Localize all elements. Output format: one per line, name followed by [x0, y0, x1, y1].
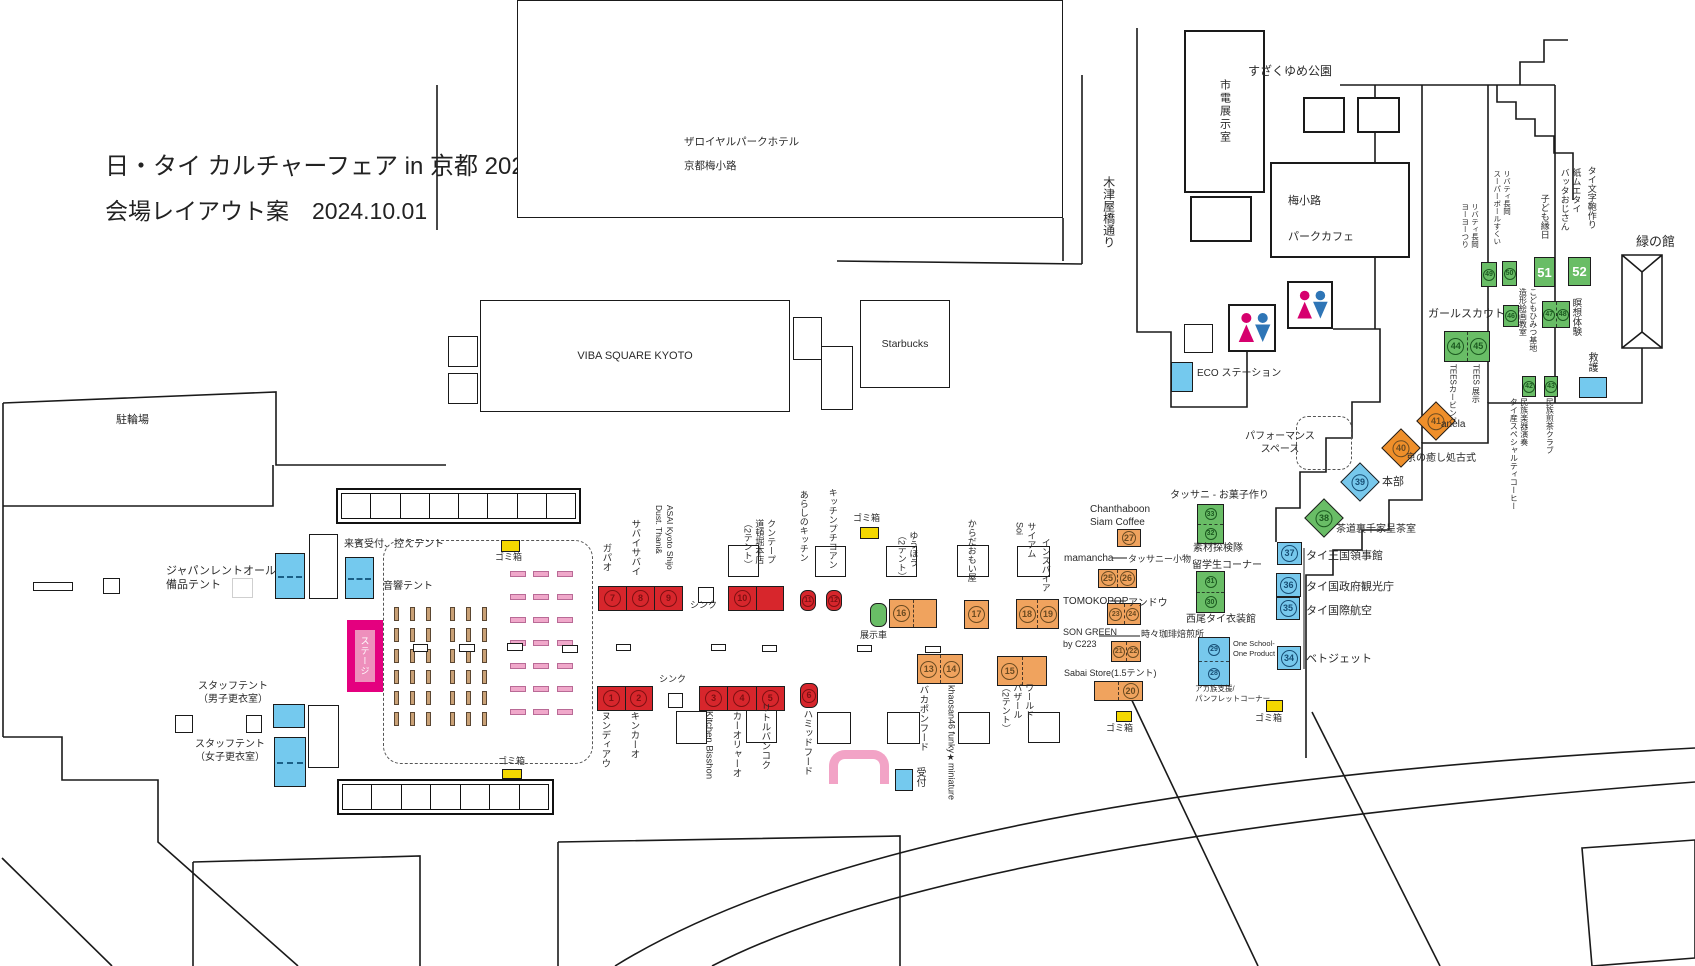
bench-tan [466, 628, 471, 642]
bench-tan [482, 691, 487, 705]
bench-pink [510, 709, 526, 715]
bench-pink [533, 640, 549, 646]
bench-tan [482, 712, 487, 726]
label-53: タイ王国領事館 [1306, 549, 1383, 563]
label-67: TEESカービング [1447, 364, 1457, 425]
label-40: mamancha [1064, 552, 1113, 565]
tent [308, 705, 339, 768]
tent [817, 712, 851, 744]
bench-pink [557, 617, 573, 623]
label-25: ゆうほう （2テント） [895, 531, 918, 581]
label-6: ジャパンレントオール 備品テント [166, 564, 276, 593]
bench-tan [482, 607, 487, 621]
bench-tan [394, 649, 399, 663]
pergola-2 [337, 779, 554, 815]
label-27: Soi サイアム [1013, 522, 1036, 558]
label-8: 音響テント [383, 580, 433, 593]
road-diag-1 [1128, 692, 1258, 966]
label-69: リバティ長岡 ヨーヨーつり [1460, 203, 1480, 248]
booth-34: 34 [1277, 646, 1301, 670]
booth-6: 6 [800, 683, 818, 708]
label-46: Sabai Store(1.5テント) [1064, 668, 1157, 680]
viba-annex-2 [448, 373, 478, 404]
bench-tan [394, 670, 399, 684]
booth-17: 17 [964, 600, 989, 629]
royal-park-hotel: ザロイヤルパークホテル京都梅小路 [517, 0, 1063, 218]
bench-tan [466, 670, 471, 684]
booth-10: 10 [728, 586, 784, 611]
page-title-line1: 日・タイ カルチャーフェア in 京都 2024 [105, 146, 538, 181]
bench-pink [533, 663, 549, 669]
booth-50: 50 [1502, 261, 1517, 286]
first-aid-box [1579, 377, 1607, 398]
park-square-2 [1357, 97, 1400, 133]
bench-pink [533, 686, 549, 692]
bench-pink [533, 709, 549, 715]
booth-11: 11 [800, 590, 816, 611]
green-hall-building [1622, 255, 1662, 348]
label-23: あらしのキッチン [797, 490, 809, 562]
tent [309, 534, 338, 599]
label-47: One School- One Product [1233, 639, 1275, 659]
booth-13-14: 1314 [917, 654, 963, 684]
venue-map: 日・タイ カルチャーフェア in 京都 2024 会場レイアウト案 2024.1… [0, 0, 1695, 966]
bench-pink [557, 594, 573, 600]
label-30: キンカーオ [627, 711, 639, 759]
park-square-1 [1303, 97, 1345, 133]
booth-31-30: 3130 [1196, 571, 1225, 613]
bench-pink [557, 686, 573, 692]
bench-tan [426, 691, 431, 705]
bench-pink [510, 617, 526, 623]
label-54: タイ国政府観光庁 [1306, 580, 1394, 594]
stage-label: ステージ [359, 636, 372, 676]
label-36: khaosan46 funky★miniature [945, 685, 957, 800]
table-bar [857, 645, 872, 652]
toilet-1 [1228, 304, 1276, 352]
bench-tan [482, 649, 487, 663]
tent [103, 578, 120, 594]
booth-33-32: 3332 [1197, 504, 1224, 544]
label-22: クンテープ 道頓堀本店 （2テント） [741, 519, 776, 569]
bench-tan [450, 712, 455, 726]
booth-7-8-9: 789 [598, 586, 683, 611]
label-56: ベトジェット [1306, 652, 1372, 666]
reception-box [895, 769, 913, 791]
staff-tent-male [273, 704, 305, 728]
bench-tan [450, 628, 455, 642]
label-7: 来賓受付、控えテント [344, 538, 444, 551]
booth-49: 49 [1481, 262, 1497, 287]
tent [958, 712, 990, 744]
label-15: ゴミ箱 [1255, 713, 1282, 725]
mid-annex-1 [793, 317, 822, 360]
bench-tan [426, 712, 431, 726]
bench-tan [426, 607, 431, 621]
label-16: シンク [690, 600, 717, 612]
bench-tan [410, 628, 415, 642]
booth-47-48: 4748 [1542, 301, 1570, 328]
umekoji-park-cafe: 梅小路パークカフェ [1270, 162, 1410, 258]
bench-tan [426, 670, 431, 684]
table-bar [459, 644, 475, 652]
bench-pink [510, 663, 526, 669]
label-62: 瞑想体験 [1569, 298, 1581, 336]
booth-15: 15 [997, 656, 1047, 686]
bench-pink [510, 594, 526, 600]
table-bar [413, 644, 428, 652]
bench-pink [533, 617, 549, 623]
booth-51: 51 [1534, 257, 1555, 287]
label-39: Chanthaboon Siam Coffee [1090, 503, 1150, 529]
bench-pink [557, 709, 573, 715]
staff-tent-female [274, 737, 306, 787]
label-38: 受付 [913, 767, 926, 787]
label-2: 木津屋橋通り [1100, 176, 1116, 248]
label-26: からだおもい屋 [965, 519, 977, 582]
label-59: 京の癒し処古式 [1406, 452, 1476, 465]
label-41: タッサニー小物 [1128, 554, 1191, 566]
label-72: 紙ムエタイ バッタおじさん [1558, 168, 1581, 231]
label-42: TOMOKOPOP [1063, 595, 1128, 608]
booth-25-26: 2526 [1098, 569, 1137, 588]
exhibit-car [870, 603, 887, 627]
toilet-icon [1230, 306, 1278, 354]
plaza-north-edge [837, 218, 1082, 264]
label-61: ガールスカウト [1428, 307, 1505, 321]
bench-pink [557, 571, 573, 577]
label-58: 茶道裏千家呈茶室 [1336, 523, 1416, 536]
booth-16: 16 [889, 599, 937, 628]
bench-tan [450, 649, 455, 663]
rental-tent-1 [275, 553, 305, 599]
label-24: キッチンプチコアン [826, 488, 838, 569]
label-70: リバティ長岡 スーパーボールすくい [1492, 170, 1512, 245]
label-49: タッサニ - お菓子作り [1170, 489, 1269, 502]
tram-exhibit-annex [1190, 196, 1252, 242]
mid-annex-2 [821, 346, 853, 410]
booth-27: 27 [1117, 529, 1141, 547]
label-19: ガパオ [599, 543, 611, 572]
label-52: 西尾タイ衣装館 [1186, 613, 1256, 626]
label-64: 造形絵画教室 こどもひみつ基地 [1517, 288, 1538, 352]
table-bar [616, 644, 631, 651]
bench-tan [394, 712, 399, 726]
table-bar [762, 645, 777, 652]
label-1: 緑の館 [1636, 234, 1675, 251]
entrance-arch [829, 750, 889, 784]
bench-tan [466, 712, 471, 726]
label-43: アンドウ [1128, 597, 1168, 610]
bench-pink [510, 686, 526, 692]
label-34: ハミッドフード [800, 709, 812, 776]
road-curve-2 [712, 782, 1695, 966]
label-33: リトルバンコク [758, 703, 770, 770]
bench-tan [466, 691, 471, 705]
booth-42: 42 [1522, 376, 1536, 397]
trash-bin [1116, 711, 1132, 722]
label-55: タイ国際航空 [1306, 604, 1372, 618]
starbucks: Starbucks [860, 300, 950, 388]
tent [175, 715, 193, 733]
bench-pink [533, 571, 549, 577]
bench-tan [410, 670, 415, 684]
label-48: アカ族支援/ パンフレットコーナー [1195, 684, 1270, 704]
label-51: 留学生コーナー [1192, 559, 1262, 572]
booth-20: 20 [1094, 681, 1143, 701]
label-45: 時々珈琲焙煎所 [1141, 629, 1204, 641]
label-63: 救護 [1585, 352, 1598, 372]
bench-tan [482, 628, 487, 642]
label-68: TEES 展示 [1470, 364, 1480, 403]
booth-44-45: 4445 [1444, 331, 1490, 362]
bench-tan [450, 691, 455, 705]
booth-52: 52 [1568, 257, 1591, 286]
page-title-line2: 会場レイアウト案 2024.10.01 [105, 192, 427, 226]
label-4: パフォーマンス スペース [1240, 430, 1320, 456]
label-37: ワールド バザール （2テント） [999, 683, 1034, 733]
booth-18-19: 1819 [1016, 599, 1059, 629]
bench-tan [410, 607, 415, 621]
bench-tan [482, 670, 487, 684]
bottom-left-steps [2, 737, 298, 966]
booth-37: 37 [1277, 542, 1302, 565]
eco-station-box [1171, 362, 1193, 392]
tram-exhibit-room: 市電展示室 [1184, 30, 1265, 193]
booth-43: 43 [1544, 376, 1558, 397]
tent [246, 715, 262, 733]
viba-square-kyoto: VIBA SQUARE KYOTO [480, 300, 790, 412]
label-3: ECO ステーション [1197, 367, 1281, 380]
label-65: 民族楽器演奏 タイ産スペシャルティコーヒー [1508, 398, 1529, 510]
tent [1184, 324, 1213, 353]
label-28: インスパイア [1039, 538, 1051, 592]
label-14: ゴミ箱 [1106, 723, 1133, 735]
label-18: 展示車 [860, 630, 887, 642]
label-57: 本部 [1382, 475, 1404, 489]
label-13: ゴミ箱 [498, 756, 525, 768]
bench-pink [557, 663, 573, 669]
booth-36: 36 [1276, 573, 1301, 597]
label-20: サバイサバイ [628, 519, 640, 576]
booth-3-4-5: 345 [699, 686, 785, 711]
bench-tan [394, 628, 399, 642]
guest-reception-tent [345, 557, 374, 599]
label-44: SON GREEN by C223 [1063, 627, 1117, 650]
label-32: カーオリャーオ [729, 711, 741, 778]
table-bar [507, 643, 523, 651]
toilet-icon [1289, 283, 1335, 331]
label-21: Dust. Thani& ASAI Kyoto Shijo [653, 505, 675, 570]
table-bar [925, 646, 941, 653]
toilet-2 [1287, 281, 1333, 329]
road-curve-1 [615, 748, 1695, 966]
label-71: 子ども縁日 [1538, 194, 1550, 239]
label-29: ヌンディアウ [598, 711, 610, 768]
booth-35: 35 [1276, 597, 1300, 620]
table-bar [33, 582, 73, 591]
pergola-1 [336, 488, 581, 524]
bench-tan [450, 607, 455, 621]
tent [668, 693, 683, 708]
label-5: 駐輪場 [116, 413, 149, 427]
trash-bin [502, 769, 522, 779]
label-35: バカポンフード [916, 685, 928, 752]
bench-tan [410, 691, 415, 705]
label-73: タイ文字鞄作り [1585, 166, 1597, 229]
label-31: Kitchen Bisshon [702, 711, 714, 779]
viba-annex-1 [448, 336, 478, 367]
bench-tan [466, 607, 471, 621]
bench-tan [426, 628, 431, 642]
table-bar [562, 645, 578, 653]
booth-1-2: 12 [597, 686, 653, 711]
bench-tan [394, 691, 399, 705]
bench-pink [510, 571, 526, 577]
bottom-right-building [1582, 840, 1695, 966]
label-0: すざくゆめ公園 [1248, 64, 1332, 80]
stage: ステージ [347, 620, 383, 692]
label-66: 民族煎茶クラブ [1544, 398, 1554, 454]
bench-tan [450, 670, 455, 684]
booth-29-28: 2928 [1198, 637, 1230, 686]
label-11: ゴミ箱 [495, 552, 522, 564]
bench-tan [394, 607, 399, 621]
label-12: ゴミ箱 [853, 513, 880, 525]
label-9: スタッフテント （男子更衣室） [198, 680, 268, 706]
table-bar [711, 644, 726, 651]
label-50: 素材探検隊 [1193, 542, 1243, 555]
label-17: シンク [659, 674, 686, 686]
trash-bin [860, 527, 879, 539]
booth-12: 12 [826, 590, 842, 611]
road-diag-2 [1312, 712, 1440, 966]
bench-pink [533, 594, 549, 600]
bottom-rect-center [558, 836, 900, 966]
label-10: スタッフテント （女子更衣室） [195, 738, 265, 764]
trash-bin [501, 540, 520, 552]
bench-tan [410, 712, 415, 726]
bottom-rect-left [193, 856, 420, 966]
